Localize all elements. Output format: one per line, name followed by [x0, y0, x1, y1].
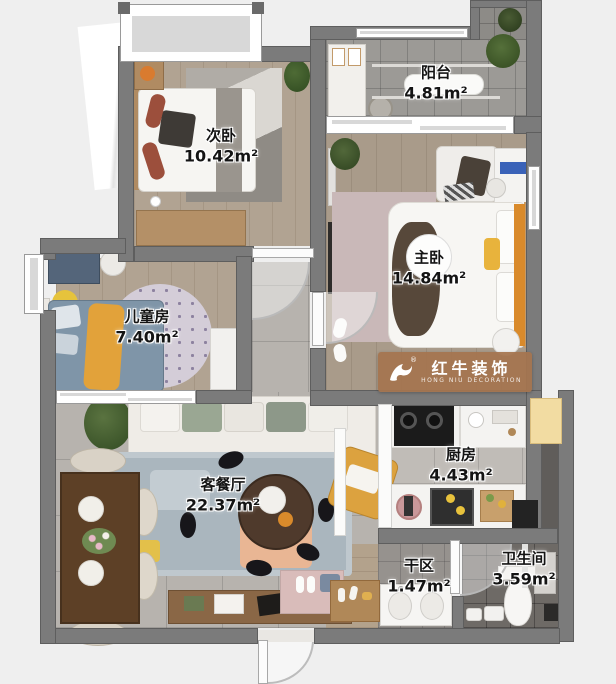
- window-post: [118, 2, 130, 14]
- room-area: 22.37m²: [186, 495, 260, 517]
- room-area: 10.42m²: [184, 146, 258, 168]
- sofa-cushion: [140, 402, 180, 432]
- balcony-slider-panel: [420, 126, 506, 130]
- plant: [330, 138, 360, 170]
- fruit: [456, 506, 465, 515]
- watermark-brand-en: HONG NIU DECORATION: [421, 377, 522, 385]
- room-label-secondary-bedroom: 次卧 10.42m²: [184, 127, 258, 168]
- vegetable: [498, 500, 506, 508]
- sofa-cushion: [224, 402, 264, 432]
- bay-window-glass: [132, 16, 250, 52]
- kettle: [468, 412, 484, 428]
- shoe: [307, 576, 315, 593]
- laptop: [500, 162, 526, 174]
- bath-item: [466, 608, 482, 621]
- room-area: 4.43m²: [429, 465, 492, 487]
- room-area: 4.81m²: [404, 83, 467, 105]
- frame-decor: [214, 594, 244, 614]
- desk-chair: [486, 178, 506, 198]
- room-area: 14.84m²: [392, 268, 466, 290]
- plant: [84, 396, 132, 450]
- appliance: [512, 500, 538, 528]
- burner: [426, 412, 443, 429]
- secondary-bedroom-door: [252, 248, 314, 258]
- plate: [258, 486, 286, 514]
- frame-decor: [348, 48, 361, 66]
- room-label-dry-area: 干区 1.47m²: [387, 557, 450, 598]
- watermark-brand: 红牛装饰: [431, 360, 511, 377]
- wall: [40, 628, 258, 644]
- master-bedroom-door: [312, 292, 324, 346]
- tray: [492, 410, 518, 424]
- desk: [136, 210, 246, 246]
- kids-slider-panel: [60, 393, 126, 396]
- kitchen-door-panel: [334, 428, 346, 536]
- entrance-door: [258, 640, 268, 684]
- wall: [526, 0, 542, 132]
- orange-throw: [514, 204, 525, 346]
- decor: [362, 592, 372, 600]
- room-name: 阳台: [404, 64, 467, 83]
- wall: [196, 390, 252, 404]
- plant: [284, 60, 310, 92]
- wardrobe: [210, 328, 238, 390]
- balcony-slider-panel: [332, 120, 412, 124]
- sofa-cushion: [266, 402, 306, 432]
- room-area: 7.40m²: [115, 327, 178, 349]
- room-area: 1.47m²: [387, 576, 450, 598]
- vegetable: [486, 494, 494, 502]
- room-label-kitchen: 厨房 4.43m²: [429, 446, 492, 487]
- watermark: ® 红牛装饰 HONG NIU DECORATION: [378, 352, 532, 392]
- room-name: 客餐厅: [186, 476, 260, 495]
- jar: [508, 428, 516, 436]
- flower-bouquet: [82, 528, 116, 554]
- frame-decor: [332, 48, 345, 66]
- wall: [118, 46, 134, 262]
- wall: [452, 596, 464, 630]
- kitchen-door-frame: [378, 404, 392, 528]
- room-label-balcony: 阳台 4.81m²: [404, 64, 467, 105]
- registered-mark: ®: [410, 356, 417, 364]
- room-label-kids-room: 儿童房 7.40m²: [115, 308, 178, 349]
- room-name: 卫生间: [492, 550, 555, 569]
- room-name: 主卧: [392, 249, 466, 268]
- room-name: 厨房: [429, 446, 492, 465]
- cutting-board: [480, 490, 514, 522]
- books: [184, 596, 204, 611]
- wall: [314, 628, 560, 644]
- room-name: 儿童房: [115, 308, 178, 327]
- bowl-decor: [140, 66, 155, 81]
- balcony-sliding-door: [326, 116, 514, 134]
- kids-room-window-glass: [30, 258, 38, 310]
- room-area: 3.59m²: [492, 569, 555, 591]
- window-post: [252, 2, 264, 14]
- wall: [40, 238, 126, 254]
- bowl: [278, 512, 293, 527]
- bath-item: [484, 606, 504, 621]
- room-label-master-bedroom: 主卧 14.84m²: [392, 249, 466, 290]
- room-label-living-dining: 客餐厅 22.37m²: [186, 476, 260, 517]
- sofa-cushion: [182, 402, 222, 432]
- wall: [40, 310, 56, 644]
- plate: [78, 496, 104, 522]
- master-window-glass: [532, 170, 536, 226]
- entrance-door-arc: [268, 640, 314, 684]
- plate: [78, 560, 104, 586]
- room-name: 干区: [387, 557, 450, 576]
- fruit: [446, 494, 455, 503]
- desk-lamp: [150, 196, 161, 207]
- plant: [486, 34, 520, 68]
- plant: [498, 8, 522, 32]
- tall-cabinet: [530, 398, 562, 444]
- bathroom-door: [450, 540, 460, 594]
- wall: [310, 390, 542, 406]
- room-name: 次卧: [184, 127, 258, 146]
- balcony-window-glass: [360, 31, 464, 34]
- bottle: [404, 496, 413, 516]
- bull-logo-icon: [388, 361, 414, 383]
- shoe: [296, 576, 304, 593]
- dining-chair: [70, 448, 126, 474]
- yellow-pillow: [484, 238, 500, 270]
- slipper: [338, 588, 345, 602]
- wall: [378, 528, 558, 544]
- kids-slider-panel: [128, 398, 192, 401]
- room-label-bathroom: 卫生间 3.59m²: [492, 550, 555, 591]
- burner: [400, 412, 417, 429]
- wall: [236, 256, 252, 392]
- floor-plan: 次卧 10.42m² 阳台 4.81m² 主卧 14.84m² 儿童房 7.40…: [0, 0, 616, 684]
